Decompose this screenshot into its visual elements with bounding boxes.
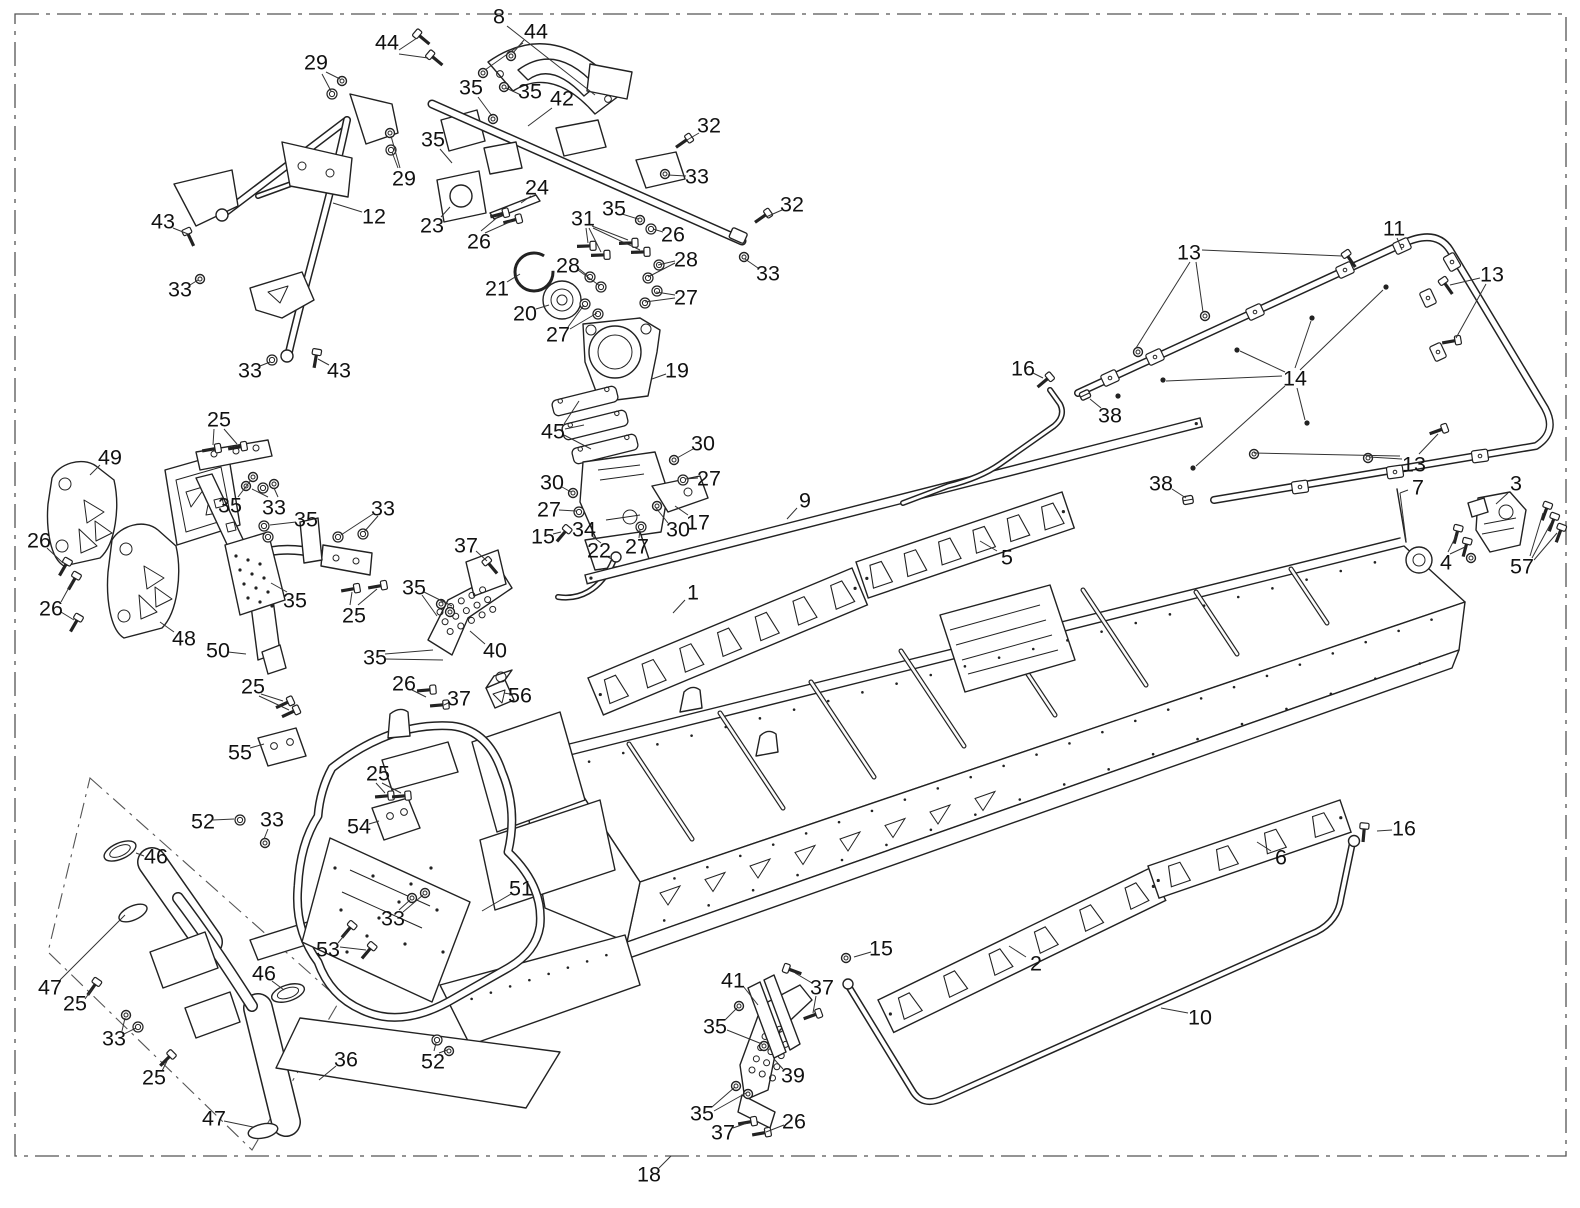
bolt-icon — [1441, 335, 1461, 347]
part-number-label: 16 — [1392, 817, 1416, 841]
part-number-label: 13 — [1480, 263, 1504, 287]
part-number-label: 1 — [687, 581, 699, 605]
part-number-label: 57 — [1510, 555, 1534, 579]
part-number-label: 28 — [674, 248, 698, 272]
part-number-label: 22 — [587, 539, 611, 563]
bolt-icon — [577, 241, 596, 251]
part-number-label: 18 — [637, 1163, 661, 1187]
part-number-label: 35 — [294, 508, 318, 532]
part-number-label: 33 — [262, 496, 286, 520]
part-number-label: 14 — [1283, 367, 1307, 391]
part-number-label: 23 — [420, 214, 444, 238]
bolt-icon — [412, 28, 432, 47]
stud-icon — [1383, 284, 1388, 289]
leader-line — [1377, 830, 1392, 831]
part-number-label: 33 — [260, 808, 284, 832]
part-number-label: 43 — [151, 210, 175, 234]
part-number-label: 25 — [207, 408, 231, 432]
bolt-icon — [340, 583, 360, 595]
part-number-label: 33 — [168, 278, 192, 302]
part-number-label: 33 — [371, 497, 395, 521]
nut-icon — [261, 839, 270, 848]
washer-icon — [640, 298, 650, 308]
bolt-icon — [1035, 371, 1055, 390]
leader-line — [270, 522, 296, 525]
leader-line — [1196, 386, 1285, 466]
washer-icon — [133, 1022, 143, 1032]
part-number-label: 36 — [334, 1048, 358, 1072]
part-number-label: 37 — [454, 534, 478, 558]
part-number-label: 26 — [39, 597, 63, 621]
nut-icon — [445, 1047, 454, 1056]
washer-icon — [258, 483, 268, 493]
nut-icon — [507, 52, 516, 61]
bolt-icon — [1552, 523, 1567, 544]
part-number-label: 49 — [98, 446, 122, 470]
part-number-label: 53 — [316, 938, 340, 962]
leader-line — [712, 1087, 735, 1107]
nut-icon — [760, 1042, 769, 1051]
part-number-label: 35 — [459, 76, 483, 100]
part-number-label: 38 — [1098, 404, 1122, 428]
part-number-label: 8 — [493, 5, 505, 29]
part-number-label: 7 — [1412, 476, 1424, 500]
bolt-icon — [1538, 501, 1553, 522]
stud-icon — [1115, 393, 1120, 398]
part-number-label: 16 — [1011, 357, 1035, 381]
part-number-label: 46 — [252, 962, 276, 986]
part-number-label: 25 — [241, 675, 265, 699]
part-number-label: 35 — [518, 80, 542, 104]
part-number-label: 9 — [799, 489, 811, 513]
leader-line — [1202, 250, 1342, 256]
part-number-label: 30 — [540, 471, 564, 495]
nut-icon — [338, 77, 347, 86]
part-number-label: 40 — [483, 639, 507, 663]
leader-line — [1297, 388, 1305, 420]
leader-line — [559, 510, 576, 511]
part-number-label: 24 — [525, 176, 549, 200]
leader-line — [478, 97, 492, 116]
part-number-label: 52 — [421, 1050, 445, 1074]
part-number-label: 37 — [711, 1121, 735, 1145]
part-number-label: 4 — [1440, 551, 1452, 575]
leader-line — [1136, 262, 1190, 348]
washer-icon — [235, 815, 245, 825]
nut-icon — [569, 489, 578, 498]
leader-line — [1172, 489, 1186, 498]
part-number-label: 56 — [508, 684, 532, 708]
part-number-label: 10 — [1188, 1006, 1212, 1030]
leader-line — [1419, 434, 1438, 454]
stud-icon — [1304, 420, 1309, 425]
bolt-icon — [367, 580, 387, 592]
leader-line — [326, 72, 340, 79]
front-suspension-module — [48, 778, 340, 1150]
washer-icon — [333, 532, 343, 542]
part-number-label: 17 — [686, 511, 710, 535]
leader-line — [673, 600, 685, 613]
diagram-canvas: 8444429353542352912433333432324263135263… — [0, 0, 1580, 1208]
stud-icon — [1160, 377, 1165, 382]
part-number-label: 35 — [283, 589, 307, 613]
nut-icon — [386, 129, 395, 138]
washer-icon — [652, 286, 662, 296]
bolt-icon — [1450, 524, 1464, 545]
part-number-label: 52 — [191, 810, 215, 834]
leader-line — [1369, 457, 1402, 459]
part-number-label: 20 — [513, 302, 537, 326]
part-number-label: 26 — [782, 1110, 806, 1134]
bolt-icon — [310, 348, 322, 368]
part-number-label: 31 — [571, 207, 595, 231]
leader-line — [1254, 453, 1400, 456]
leader-line — [1161, 1008, 1188, 1013]
part-number-label: 21 — [485, 277, 509, 301]
part-number-label: 42 — [550, 87, 574, 111]
leader-line — [1400, 493, 1406, 540]
leader-line — [528, 108, 552, 126]
washer-icon — [678, 475, 688, 485]
part-number-label: 13 — [1402, 453, 1426, 477]
washer-icon — [263, 532, 273, 542]
nut-icon — [500, 83, 509, 92]
diagram-page: 8444429353542352912433333432324263135263… — [0, 0, 1580, 1208]
bolt-icon — [553, 524, 572, 544]
washer-icon — [585, 272, 595, 282]
part-number-label: 47 — [38, 976, 62, 1000]
leader-line — [341, 514, 373, 535]
washer-icon — [267, 355, 277, 365]
part-number-label: 15 — [869, 937, 893, 961]
leader-line — [333, 203, 362, 212]
part-number-label: 35 — [602, 197, 626, 221]
part-number-label: 37 — [447, 687, 471, 711]
leader-line — [385, 650, 433, 654]
nut-icon — [489, 115, 498, 124]
part-number-label: 33 — [756, 262, 780, 286]
bolt-icon — [274, 696, 295, 712]
leader-line — [1300, 290, 1383, 370]
washer-icon — [596, 282, 606, 292]
part-number-label: 32 — [780, 193, 804, 217]
part-number-label: 47 — [202, 1107, 226, 1131]
part-number-label: 35 — [218, 494, 242, 518]
part-number-label: 38 — [1149, 472, 1173, 496]
bolt-icon — [67, 613, 84, 634]
bolt-icon — [631, 247, 650, 257]
bolt-icon — [802, 1008, 823, 1023]
part-number-label: 54 — [347, 815, 371, 839]
leader-line — [224, 1121, 253, 1127]
stud-icon — [1190, 465, 1195, 470]
washer-icon — [643, 273, 653, 283]
leader-line — [1240, 351, 1285, 372]
nut-icon — [661, 170, 670, 179]
part-number-label: 37 — [810, 976, 834, 1000]
part-number-label: 35 — [363, 646, 387, 670]
part-number-label: 44 — [524, 20, 548, 44]
part-number-label: 50 — [206, 639, 230, 663]
part-number-label: 13 — [1177, 241, 1201, 265]
leader-line — [652, 374, 666, 379]
washer-icon — [259, 521, 269, 531]
leader-line — [1196, 262, 1203, 312]
bolt-icon — [751, 1127, 771, 1139]
part-number-label: 27 — [697, 467, 721, 491]
part-number-label: 33 — [685, 165, 709, 189]
part-number-label: 25 — [342, 604, 366, 628]
part-number-label: 6 — [1275, 846, 1287, 870]
part-number-label: 25 — [63, 992, 87, 1016]
nut-icon — [636, 216, 645, 225]
part-number-label: 55 — [228, 741, 252, 765]
part-number-label: 28 — [556, 254, 580, 278]
part-number-label: 32 — [697, 114, 721, 138]
leader-line — [1295, 321, 1311, 368]
nut-icon — [249, 473, 258, 482]
leader-line — [399, 38, 417, 50]
bolt-icon — [619, 238, 638, 248]
part-number-label: 29 — [304, 51, 328, 75]
part-number-label: 33 — [381, 907, 405, 931]
part-number-label: 27 — [537, 498, 561, 522]
part-number-label: 19 — [665, 359, 689, 383]
part-number-label: 25 — [142, 1066, 166, 1090]
steering-post-bracket — [1468, 492, 1526, 552]
part-number-label: 26 — [467, 230, 491, 254]
washer-icon — [432, 1035, 442, 1045]
leader-line — [322, 74, 331, 91]
part-number-label: 29 — [392, 167, 416, 191]
leader-line — [1166, 376, 1282, 381]
part-number-label: 5 — [1001, 546, 1013, 570]
part-number-label: 44 — [375, 31, 399, 55]
washer-icon — [327, 89, 337, 99]
nut-icon — [270, 480, 279, 489]
part-number-label: 41 — [721, 969, 745, 993]
part-number-label: 2 — [1030, 952, 1042, 976]
part-number-label: 30 — [691, 432, 715, 456]
bolt-icon — [182, 227, 198, 248]
leader-line — [787, 508, 797, 519]
washer-icon — [580, 299, 590, 309]
nut-icon — [446, 608, 455, 617]
nut-icon — [842, 954, 851, 963]
washer-icon — [636, 522, 646, 532]
washer-icon — [358, 529, 368, 539]
bolt-icon — [1438, 276, 1456, 297]
leader-line — [399, 54, 428, 58]
part-number-label: 48 — [172, 627, 196, 651]
washer-icon — [574, 507, 584, 517]
part-number-label: 26 — [661, 223, 685, 247]
nut-icon — [1134, 348, 1143, 357]
bolt-icon — [1428, 423, 1449, 438]
part-number-label: 35 — [402, 576, 426, 600]
part-number-label: 51 — [509, 877, 533, 901]
bolt-icon — [737, 1116, 757, 1128]
part-number-label: 11 — [1383, 217, 1405, 241]
part-number-label: 35 — [703, 1015, 727, 1039]
part-number-label: 27 — [674, 286, 698, 310]
part-number-label: 12 — [362, 205, 386, 229]
part-number-label: 27 — [625, 535, 649, 559]
part-number-label: 45 — [541, 420, 565, 444]
part-number-label: 26 — [392, 672, 416, 696]
part-number-label: 39 — [781, 1064, 805, 1088]
nut-icon — [1467, 554, 1476, 563]
stud-icon — [1309, 315, 1314, 320]
bolt-icon — [673, 133, 694, 151]
part-number-label: 27 — [546, 323, 570, 347]
bolt-icon — [1359, 823, 1370, 843]
leader-line — [1400, 490, 1408, 493]
nut-icon — [122, 1011, 131, 1020]
part-number-label: 33 — [238, 359, 262, 383]
nut-icon — [196, 275, 205, 284]
leader-line — [213, 819, 234, 820]
leader-line — [385, 659, 443, 660]
nut-icon — [670, 456, 679, 465]
stud-icon — [1234, 347, 1239, 352]
part-number-label: 15 — [531, 525, 555, 549]
part-number-label: 26 — [27, 529, 51, 553]
nut-icon — [1250, 450, 1259, 459]
part-number-label: 35 — [421, 128, 445, 152]
part-number-label: 3 — [1510, 472, 1522, 496]
part-number-label: 46 — [144, 845, 168, 869]
leader-line — [228, 652, 246, 654]
leader-line — [60, 915, 125, 980]
nut-icon — [1201, 312, 1210, 321]
part-number-label: 33 — [102, 1027, 126, 1051]
bolt-icon — [752, 208, 773, 226]
bolt-icon — [425, 49, 445, 68]
bolt-icon — [65, 571, 82, 592]
leader-line — [592, 226, 628, 240]
leader-line — [1534, 533, 1557, 560]
part-number-label: 25 — [366, 762, 390, 786]
part-number-label: 43 — [327, 359, 351, 383]
